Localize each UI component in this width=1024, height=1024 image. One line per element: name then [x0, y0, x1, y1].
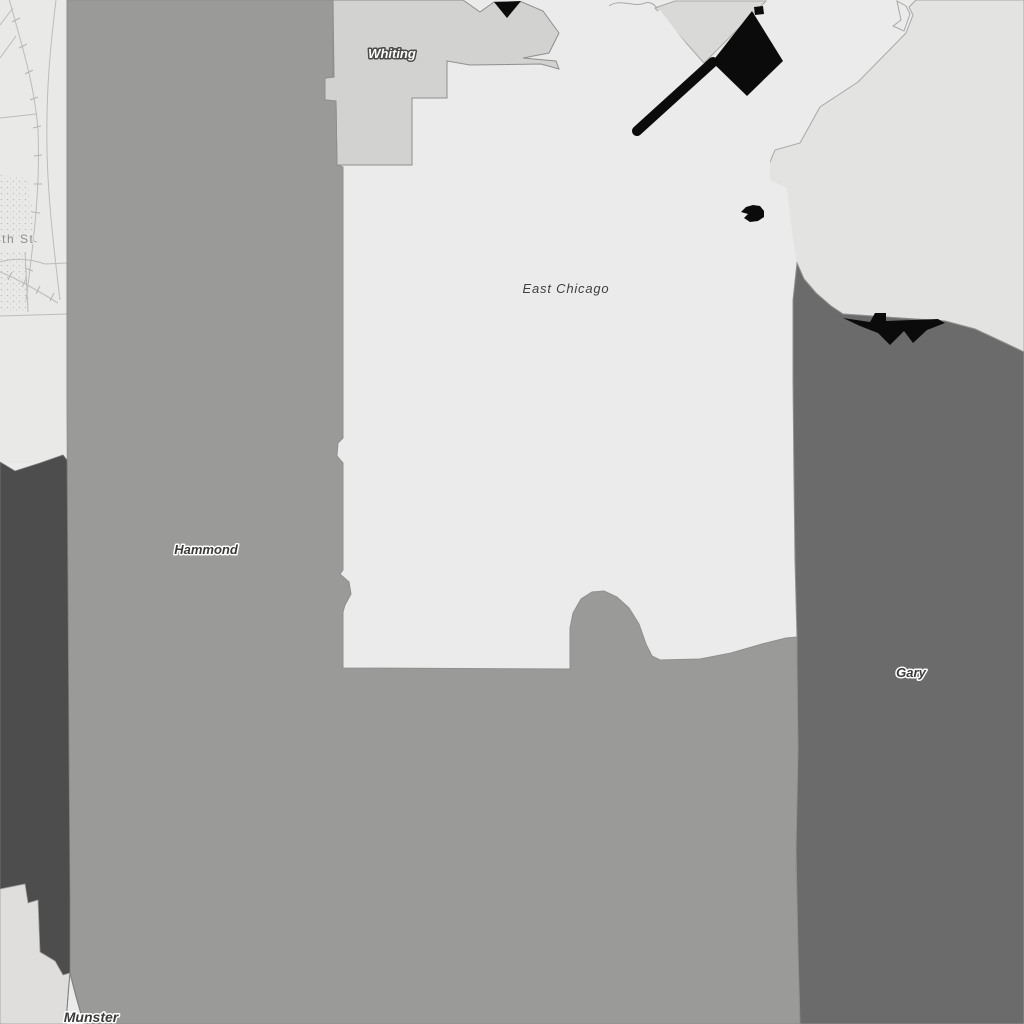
label-munster: Munster [64, 1009, 120, 1024]
region-gary[interactable] [793, 263, 1024, 1024]
pier-tip-feature [754, 6, 764, 15]
label-whiting: Whiting [368, 46, 416, 61]
map-viewport[interactable]: Whiting East Chicago Hammond Gary Munste… [0, 0, 1024, 1024]
map-canvas[interactable]: Whiting East Chicago Hammond Gary Munste… [0, 0, 1024, 1024]
label-east-chicago: East Chicago [523, 281, 610, 296]
label-gary: Gary [896, 665, 926, 680]
label-fourth-st: 4th St [0, 232, 34, 246]
label-hammond: Hammond [174, 542, 239, 557]
